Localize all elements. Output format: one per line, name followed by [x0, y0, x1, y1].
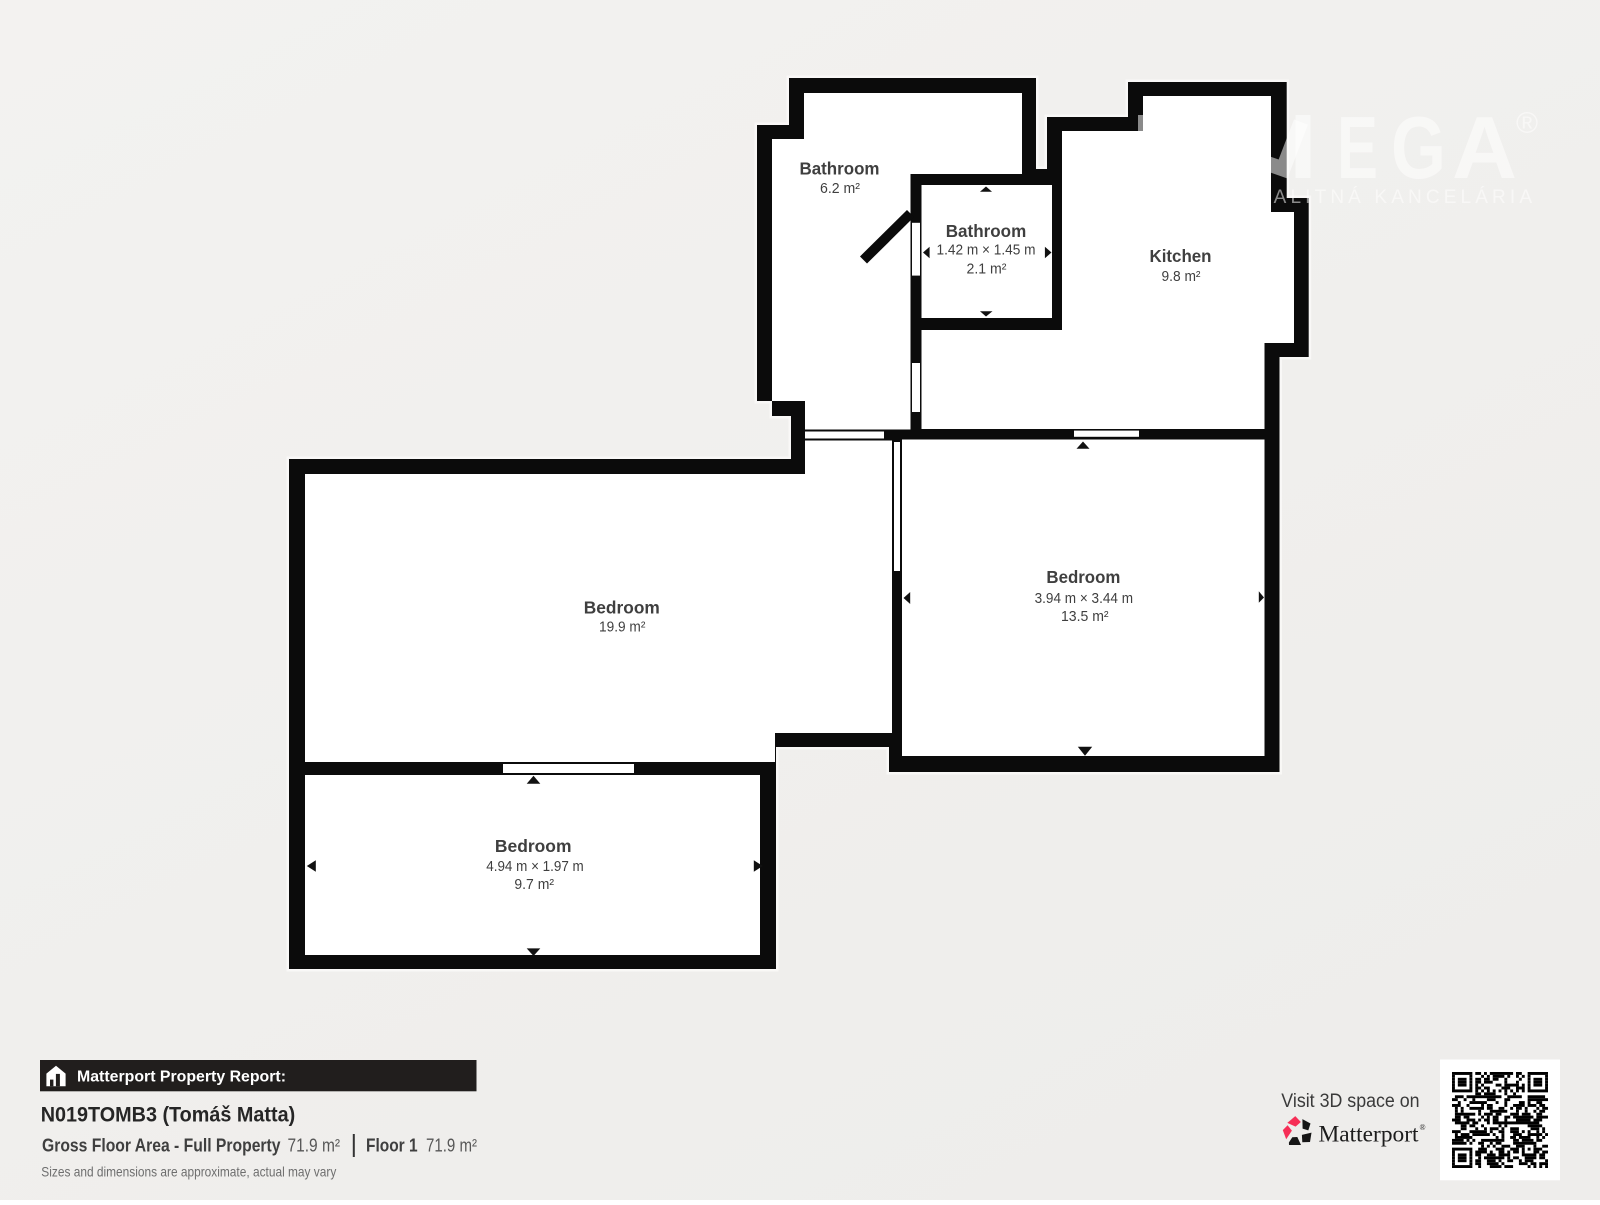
svg-text:6.2 m²: 6.2 m² — [820, 181, 860, 197]
svg-text:Bathroom: Bathroom — [946, 221, 1027, 241]
svg-text:1.42 m × 1.45 m: 1.42 m × 1.45 m — [937, 243, 1036, 259]
svg-text:A: A — [1452, 98, 1517, 197]
svg-text:N019TOMB3 (Tomáš Matta): N019TOMB3 (Tomáš Matta) — [41, 1104, 296, 1127]
svg-text:Bedroom: Bedroom — [495, 836, 572, 856]
svg-text:®: ® — [1420, 1123, 1426, 1132]
svg-text:Matterport: Matterport — [1319, 1122, 1420, 1147]
svg-text:3.94 m × 3.44 m: 3.94 m × 3.44 m — [1035, 591, 1133, 607]
svg-text:Gross Floor Area - Full Proper: Gross Floor Area - Full Property — [42, 1136, 281, 1156]
svg-text:Bedroom: Bedroom — [1046, 567, 1120, 587]
svg-text:9.8 m²: 9.8 m² — [1162, 269, 1201, 285]
svg-text:13.5 m²: 13.5 m² — [1061, 609, 1109, 625]
svg-text:Bathroom: Bathroom — [800, 159, 880, 179]
svg-text:9.7 m²: 9.7 m² — [514, 877, 554, 893]
svg-text:Visit 3D space on: Visit 3D space on — [1281, 1091, 1419, 1112]
svg-text:®: ® — [1516, 107, 1538, 140]
svg-text:Matterport Property Report:: Matterport Property Report: — [77, 1069, 286, 1086]
svg-text:Sizes and dimensions are appro: Sizes and dimensions are approximate, ac… — [41, 1164, 336, 1180]
svg-text:71.9 m²: 71.9 m² — [426, 1136, 477, 1156]
svg-text:19.9 m²: 19.9 m² — [599, 619, 646, 635]
svg-text:2.1 m²: 2.1 m² — [967, 262, 1007, 278]
svg-text:Floor 1: Floor 1 — [366, 1136, 418, 1156]
svg-text:G: G — [1391, 98, 1446, 197]
svg-text:Bedroom: Bedroom — [584, 597, 660, 617]
svg-text:E: E — [1337, 98, 1378, 197]
svg-text:Kitchen: Kitchen — [1150, 246, 1212, 266]
svg-text:71.9 m²: 71.9 m² — [288, 1136, 341, 1156]
svg-text:4.94 m × 1.97 m: 4.94 m × 1.97 m — [486, 859, 584, 875]
